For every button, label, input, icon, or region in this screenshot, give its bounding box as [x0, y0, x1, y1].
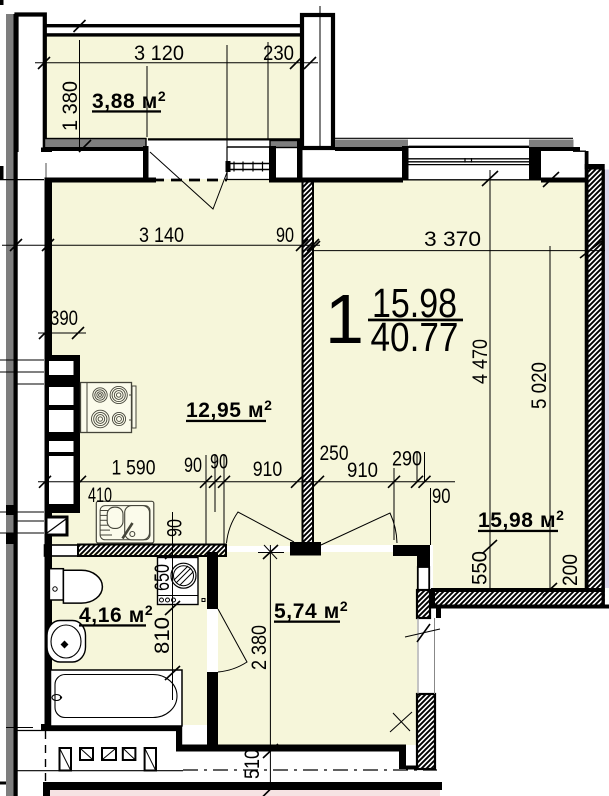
svg-text:230: 230 [263, 42, 294, 65]
svg-text:410: 410 [88, 484, 112, 507]
svg-text:910: 910 [347, 459, 378, 482]
svg-text:200: 200 [559, 554, 582, 586]
svg-text:4,16 м2: 4,16 м2 [79, 602, 153, 627]
svg-text:4 470: 4 470 [469, 339, 492, 384]
svg-text:510: 510 [241, 749, 264, 779]
svg-text:250: 250 [320, 442, 349, 465]
svg-text:390: 390 [50, 307, 78, 330]
svg-text:3 370: 3 370 [424, 228, 481, 251]
svg-text:290: 290 [392, 448, 422, 471]
svg-text:12,95 м2: 12,95 м2 [186, 397, 273, 422]
svg-text:650: 650 [151, 564, 174, 591]
svg-text:90: 90 [276, 224, 294, 247]
svg-text:550: 550 [469, 551, 492, 585]
svg-text:5 020: 5 020 [528, 362, 551, 409]
svg-text:3 120: 3 120 [134, 42, 184, 65]
svg-text:1: 1 [325, 280, 364, 358]
svg-text:1 590: 1 590 [112, 457, 156, 480]
svg-text:3 140: 3 140 [139, 224, 184, 247]
svg-text:15,98 м2: 15,98 м2 [478, 507, 565, 532]
svg-text:90: 90 [210, 451, 228, 474]
svg-text:40.77: 40.77 [371, 314, 459, 360]
svg-text:910: 910 [253, 458, 283, 481]
svg-text:90: 90 [432, 485, 451, 508]
svg-text:3,88 м2: 3,88 м2 [92, 88, 166, 113]
svg-text:810: 810 [151, 617, 174, 654]
svg-text:1 380: 1 380 [59, 81, 82, 131]
svg-text:90: 90 [184, 454, 202, 477]
svg-text:90: 90 [164, 519, 187, 537]
svg-text:5,74 м2: 5,74 м2 [274, 598, 348, 623]
svg-text:2 380: 2 380 [248, 625, 271, 670]
